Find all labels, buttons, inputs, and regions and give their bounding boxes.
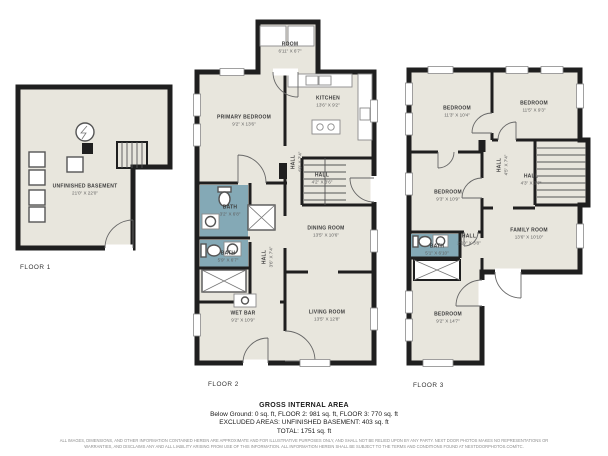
- room-name: KITCHEN: [316, 95, 340, 102]
- room-dims: 11'3" X 10'4": [443, 112, 471, 118]
- room-dims: 13'6" X 9'2": [316, 102, 340, 108]
- room-dims: 9'2" X 13'6": [217, 121, 271, 127]
- room-name: UNFINISHED BASEMENT: [53, 183, 118, 190]
- room-name: FAMILY ROOM: [510, 227, 547, 234]
- room-name: BEDROOM: [434, 311, 462, 318]
- room-dims: 4'0" X 7'4": [297, 152, 303, 173]
- room-name: BEDROOM: [434, 189, 462, 196]
- room-dims: 3'2" X 6'8": [220, 211, 241, 217]
- room-name: PRIMARY BEDROOM: [217, 114, 271, 121]
- room-label-bedroom-1: BEDROOM 11'3" X 10'4": [443, 105, 471, 118]
- floor3-plan-drawing: [398, 58, 598, 370]
- room-name: HALL: [261, 247, 268, 268]
- room-name: LIVING ROOM: [309, 309, 345, 316]
- room-label-hall-stairs: HALL 4'3" X 3'7": [521, 173, 542, 186]
- room-label-hall-stairs: HALL 4'2" X 3'6": [312, 172, 333, 185]
- area-line-1: Below Ground: 0 sq. ft, FLOOR 2: 981 sq.…: [0, 411, 608, 418]
- footer: GROSS INTERNAL AREA Below Ground: 0 sq. …: [0, 402, 608, 450]
- room-name: HALL: [457, 233, 480, 240]
- wetbar-sink-icon: [234, 294, 256, 307]
- room-label-hall-upper: HALL 4'0" X 7'4": [290, 152, 303, 173]
- room-label-primary-bedroom: PRIMARY BEDROOM 9'2" X 13'6": [217, 114, 271, 127]
- room-dims: 3'6" X 7'4": [268, 247, 274, 268]
- room-dims: 13'5" X 12'8": [309, 316, 345, 322]
- room-label-wet-bar: WET BAR 9'2" X 10'9": [230, 310, 255, 323]
- appliance-box: [67, 157, 83, 172]
- room-label-hall-small: HALL 2'10" X 3'8": [457, 233, 480, 246]
- room-label-unfinished-basement: UNFINISHED BASEMENT 21'0" X 22'0": [53, 183, 118, 196]
- toilet-icon: [218, 187, 231, 206]
- room-dims: 5'9" X 6'7": [218, 257, 239, 263]
- room-dims: 6'11" X 6'7": [278, 48, 301, 54]
- room-name: ROOM: [278, 41, 301, 48]
- room-label-hall-vertical: HALL 4'5" X 7'4": [496, 155, 509, 176]
- stove-icon: [312, 120, 340, 134]
- room-label-bath-a: BATH 3'2" X 6'8": [220, 204, 241, 217]
- room-dims: 9'2" X 10'9": [230, 317, 255, 323]
- shower-icon: [248, 205, 275, 230]
- wall-stub: [279, 163, 287, 179]
- room-name: HALL: [290, 152, 297, 173]
- room-name: BATH: [218, 250, 239, 257]
- room-name: BATH: [220, 204, 241, 211]
- room-label-bedroom-2: BEDROOM 11'5" X 9'3": [520, 100, 548, 113]
- electric-meter-icon: [76, 123, 94, 141]
- room-name: WET BAR: [230, 310, 255, 317]
- floor1-plan-drawing: [8, 78, 183, 258]
- furnace-icon: [82, 143, 93, 154]
- floor1-label: FLOOR 1: [20, 264, 51, 271]
- gross-internal-area-title: GROSS INTERNAL AREA: [0, 402, 608, 409]
- room-label-bath-b: BATH 5'9" X 6'7": [218, 250, 239, 263]
- area-line-2: EXCLUDED AREAS: UNFINISHED BASEMENT: 403…: [0, 419, 608, 426]
- room-dims: 9'2" X 14'7": [434, 318, 462, 324]
- room-dims: 13'6" X 10'10": [510, 234, 547, 240]
- wall-stub: [479, 140, 486, 152]
- room-label-bedroom-4: BEDROOM 9'2" X 14'7": [434, 311, 462, 324]
- door-gap: [495, 269, 521, 276]
- door-gap: [105, 245, 133, 252]
- room-name: BATH: [425, 243, 448, 250]
- room-label-living-room: LIVING ROOM 13'5" X 12'8": [309, 309, 345, 322]
- room-name: DINING ROOM: [307, 225, 344, 232]
- room-label-bath: BATH 5'1" X 6'10": [425, 243, 448, 256]
- door-gap: [273, 69, 298, 76]
- room-label-room: ROOM 6'11" X 6'7": [278, 41, 301, 54]
- room-dims: 4'3" X 3'7": [521, 180, 542, 186]
- floor2-plan-drawing: [188, 16, 388, 368]
- disclaimer-text: ALL IMAGES, DIMENSIONS, AND OTHER INFORM…: [52, 438, 557, 450]
- area-line-3: TOTAL: 1751 sq. ft: [0, 428, 608, 435]
- room-label-kitchen: KITCHEN 13'6" X 9'2": [316, 95, 340, 108]
- room-dims: 11'5" X 9'3": [520, 107, 548, 113]
- door-gap: [243, 360, 268, 367]
- room-label-dining-room: DINING ROOM 13'5" X 10'6": [307, 225, 344, 238]
- floor2-label: FLOOR 2: [208, 381, 239, 388]
- room-dims: 2'10" X 3'8": [457, 240, 480, 246]
- room-name: HALL: [496, 155, 503, 176]
- room-dims: 4'2" X 3'6": [312, 179, 333, 185]
- room-name: BEDROOM: [520, 100, 548, 107]
- door-gap: [479, 280, 486, 306]
- floor3-label: FLOOR 3: [413, 382, 444, 389]
- room-dims: 21'0" X 22'0": [53, 190, 118, 196]
- room-dims: 9'3" X 10'9": [434, 196, 462, 202]
- closet-x-icon: [202, 270, 246, 292]
- room-label-bedroom-3: BEDROOM 9'3" X 10'9": [434, 189, 462, 202]
- room-dims: 5'1" X 6'10": [425, 250, 448, 256]
- room-dims: 4'5" X 7'4": [503, 155, 509, 176]
- room-dims: 13'5" X 10'6": [307, 232, 344, 238]
- room-label-family-room: FAMILY ROOM 13'6" X 10'10": [510, 227, 547, 240]
- closet-x-icon: [414, 260, 460, 280]
- room-label-hall-lower: HALL 3'6" X 7'4": [261, 247, 274, 268]
- room-name: HALL: [312, 172, 333, 179]
- room-name: HALL: [521, 173, 542, 180]
- sink-icon: [202, 214, 219, 229]
- room-name: BEDROOM: [443, 105, 471, 112]
- door-gap: [371, 176, 378, 202]
- floor-plan-sheet: UNFINISHED BASEMENT 21'0" X 22'0" ROOM 6…: [0, 0, 608, 456]
